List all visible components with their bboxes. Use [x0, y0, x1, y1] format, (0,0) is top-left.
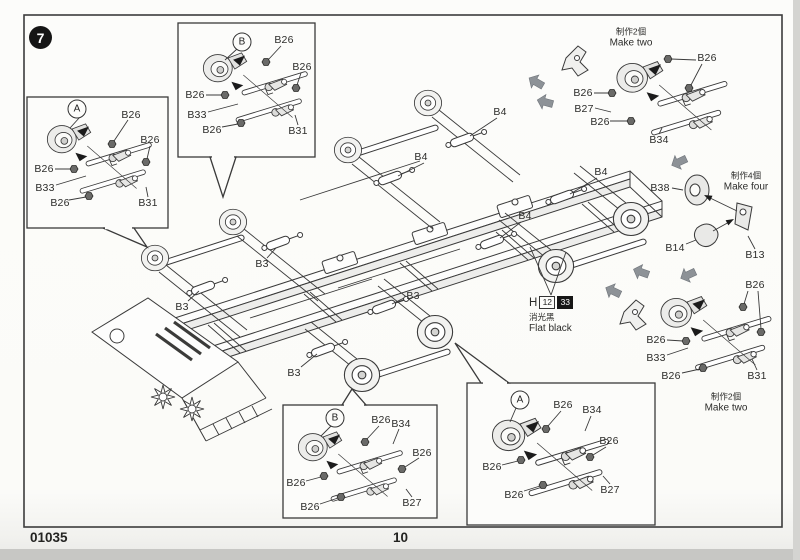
- subassembly-badge-b2: B: [326, 409, 345, 428]
- part-label: B26: [185, 89, 204, 101]
- subassembly-badge-a2: A: [511, 391, 530, 410]
- part-label: B26: [292, 61, 311, 73]
- part-label: B34: [582, 404, 601, 416]
- part-label: B26: [140, 134, 159, 146]
- part-label: B27: [600, 484, 619, 496]
- part-label: B31: [288, 125, 307, 137]
- scan-edge-right: [793, 0, 800, 560]
- part-label: B26: [646, 334, 665, 346]
- paint-brand-code: H: [529, 297, 537, 309]
- quantity-note-en: Make two: [705, 402, 748, 415]
- part-label: B26: [300, 501, 319, 513]
- part-label: B4: [493, 106, 506, 118]
- part-label: B4: [594, 166, 607, 178]
- paint-name-en: Flat black: [529, 323, 573, 334]
- paint-callout: H 12 33 消光黑 Flat black: [529, 296, 573, 334]
- part-label: B26: [50, 197, 69, 209]
- part-label: B26: [573, 87, 592, 99]
- part-label: B3: [406, 290, 419, 302]
- part-label: B26: [202, 124, 221, 136]
- part-label: B26: [121, 109, 140, 121]
- part-label: B26: [590, 116, 609, 128]
- kit-number: 01035: [30, 530, 68, 545]
- part-label: B3: [287, 367, 300, 379]
- part-label: B13: [745, 249, 764, 261]
- part-label: B26: [412, 447, 431, 459]
- part-label: B26: [697, 52, 716, 64]
- part-label: B34: [391, 418, 410, 430]
- part-label: B33: [35, 182, 54, 194]
- part-label: B27: [574, 103, 593, 115]
- part-label: B26: [274, 34, 293, 46]
- part-label: B26: [504, 489, 523, 501]
- subassembly-make-two-bottom: [620, 297, 772, 371]
- part-label: B26: [661, 370, 680, 382]
- scan-edge-bottom: [0, 549, 800, 560]
- subassembly-badge-a: A: [68, 100, 87, 119]
- quantity-note: 制作2個 Make two: [705, 391, 748, 414]
- paint-code-black: 33: [557, 296, 573, 309]
- part-label: B26: [745, 279, 764, 291]
- part-label: B33: [187, 109, 206, 121]
- part-label: B33: [646, 352, 665, 364]
- quantity-note-zh: 制作4個: [724, 170, 768, 181]
- part-label: B34: [649, 134, 668, 146]
- part-label: B38: [650, 182, 669, 194]
- part-label: B26: [34, 163, 53, 175]
- part-label: B26: [286, 477, 305, 489]
- step-number-badge: 7: [29, 26, 52, 49]
- quantity-note: 制作4個 Make four: [724, 170, 768, 193]
- part-label: B31: [747, 370, 766, 382]
- part-label: B26: [553, 399, 572, 411]
- part-label: B27: [402, 497, 421, 509]
- part-label: B31: [138, 197, 157, 209]
- paint-code-white: 12: [539, 296, 555, 309]
- instruction-page: 7 A B B A B26 B26 B26 B33 B26 B31 B26 B2…: [0, 0, 800, 560]
- part-label: B4: [518, 210, 531, 222]
- paint-name-zh: 消光黑: [529, 311, 573, 323]
- assembly-diagram: [0, 0, 800, 560]
- page-number: 10: [393, 530, 408, 545]
- quantity-note-zh: 制作2個: [610, 26, 653, 37]
- part-label: B4: [414, 151, 427, 163]
- part-label: B3: [175, 301, 188, 313]
- quantity-note: 制作2個 Make two: [610, 26, 653, 49]
- inset-box-bottom-right: [455, 343, 655, 525]
- part-label: B26: [371, 414, 390, 426]
- part-label: B14: [665, 242, 684, 254]
- part-label: B26: [482, 461, 501, 473]
- quantity-note-zh: 制作2個: [705, 391, 748, 402]
- subassembly-badge-b: B: [233, 33, 252, 52]
- quantity-note-en: Make two: [610, 37, 653, 50]
- part-label: B26: [599, 435, 618, 447]
- part-label: B3: [255, 258, 268, 270]
- quantity-note-en: Make four: [724, 181, 768, 194]
